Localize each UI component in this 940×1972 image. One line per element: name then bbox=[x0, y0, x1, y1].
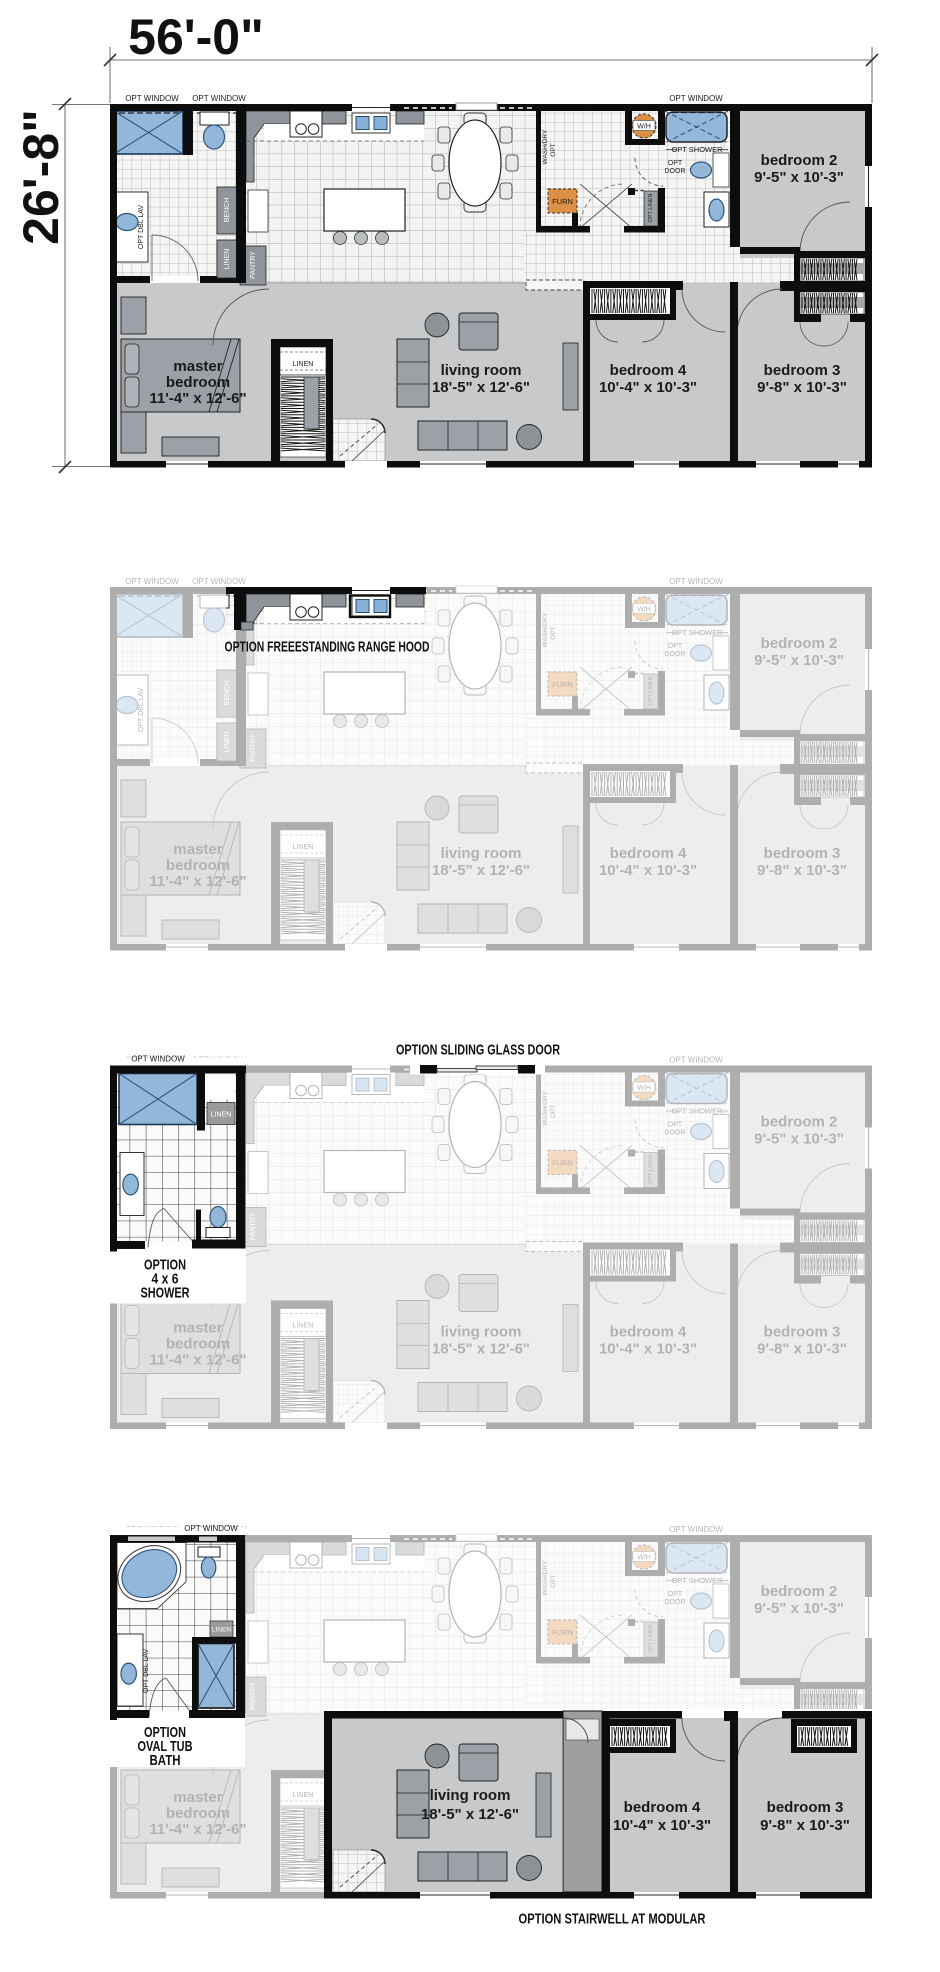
svg-text:bedroom 3: bedroom 3 bbox=[767, 1799, 844, 1816]
svg-text:OPT WINDOW: OPT WINDOW bbox=[184, 1524, 238, 1533]
svg-text:26'-8": 26'-8" bbox=[13, 109, 69, 245]
svg-text:SHOWER: SHOWER bbox=[141, 1285, 190, 1302]
svg-text:OPT DBL LAV: OPT DBL LAV bbox=[143, 1649, 150, 1694]
svg-text:OPTION STAIRWELL AT MODULAR: OPTION STAIRWELL AT MODULAR bbox=[519, 1911, 706, 1928]
svg-text:OPT WINDOW: OPT WINDOW bbox=[131, 1055, 185, 1064]
svg-text:9'-8" x 10'-3": 9'-8" x 10'-3" bbox=[760, 1817, 850, 1834]
svg-text:living room: living room bbox=[430, 1787, 511, 1804]
svg-text:OPTION FREEESTANDING RANGE HOO: OPTION FREEESTANDING RANGE HOOD bbox=[225, 639, 430, 656]
svg-text:BATH: BATH bbox=[150, 1752, 181, 1769]
svg-text:OPTION SLIDING GLASS DOOR: OPTION SLIDING GLASS DOOR bbox=[396, 1042, 560, 1059]
svg-text:10'-4" x 10'-3": 10'-4" x 10'-3" bbox=[613, 1817, 711, 1834]
svg-text:LINEN: LINEN bbox=[211, 1112, 232, 1119]
svg-text:LINEN: LINEN bbox=[212, 1627, 231, 1634]
svg-text:56'-0": 56'-0" bbox=[128, 9, 264, 65]
svg-text:18'-5" x 12'-6": 18'-5" x 12'-6" bbox=[421, 1806, 519, 1823]
svg-text:bedroom 4: bedroom 4 bbox=[624, 1799, 701, 1816]
